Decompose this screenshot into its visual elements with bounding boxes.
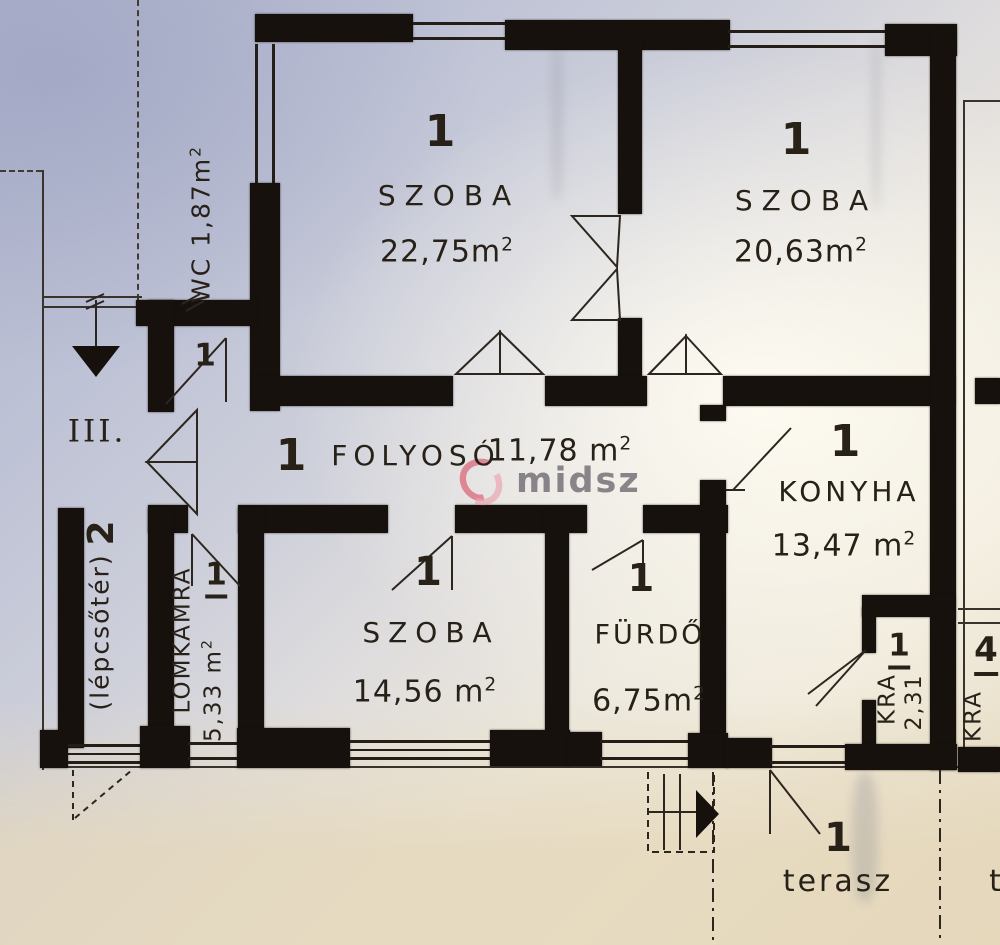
wall bbox=[545, 376, 647, 406]
room-name-konyha: KONYHA bbox=[778, 478, 919, 506]
window bbox=[350, 740, 490, 760]
room-marker-lomkamra: 1 bbox=[205, 560, 227, 591]
wall bbox=[930, 30, 956, 770]
room-area-lomkamra: 5,33 m2 bbox=[201, 638, 226, 742]
room-marker-kra: 1 bbox=[888, 631, 910, 662]
room-marker-szoba1: 1 bbox=[425, 110, 456, 154]
room-label-wc: WC 1,87m2 bbox=[188, 145, 213, 303]
neighbor-terasz-partial: t bbox=[989, 867, 1000, 897]
wall bbox=[568, 732, 602, 766]
neighbor-room-name: KRA bbox=[963, 690, 986, 742]
room-marker-szoba3: 1 bbox=[414, 552, 442, 592]
door-swing bbox=[456, 332, 500, 374]
room-marker-folyoso: 1 bbox=[276, 434, 307, 478]
door-swing bbox=[572, 269, 620, 320]
entry-swing-dashed bbox=[73, 770, 132, 820]
lobby-edge-line bbox=[42, 170, 44, 770]
wall bbox=[723, 376, 955, 406]
room-name-lepcsoter: (lépcsőtér) bbox=[88, 553, 113, 710]
lobby-wall-line bbox=[42, 296, 142, 298]
wall bbox=[958, 747, 1000, 772]
neighbor-wall-line bbox=[958, 622, 1000, 624]
room-area-szoba2: 20,63m2 bbox=[734, 237, 868, 268]
room-area-konyha: 13,47 m2 bbox=[772, 531, 917, 562]
room-marker-wc: 1 bbox=[194, 341, 216, 372]
neighbor-wall-line bbox=[963, 100, 1000, 102]
neighbor-wall-line bbox=[958, 608, 1000, 610]
window bbox=[255, 44, 275, 184]
wall bbox=[975, 378, 1000, 404]
wall bbox=[700, 405, 726, 421]
window bbox=[413, 22, 505, 40]
room-marker-furdo: 1 bbox=[628, 559, 654, 597]
wall bbox=[40, 730, 68, 768]
wall bbox=[618, 318, 642, 378]
room-name-szoba2: SZOBA bbox=[735, 187, 877, 215]
room-name-szoba1: SZOBA bbox=[378, 182, 520, 210]
room-marker-lepcsoter: 2 bbox=[84, 520, 120, 545]
wall bbox=[253, 376, 453, 406]
floor-number-label: III. bbox=[68, 417, 127, 448]
lobby-wall-line bbox=[42, 306, 142, 308]
scan-smudge bbox=[552, 40, 562, 200]
room-area-kra: 2,31 bbox=[904, 674, 926, 731]
door-swing bbox=[572, 216, 620, 267]
window bbox=[188, 742, 238, 760]
room-marker-konyha: 1 bbox=[830, 420, 861, 464]
room-area-szoba3: 14,56 m2 bbox=[353, 677, 498, 708]
room-name-furdo: FÜRDŐ bbox=[594, 622, 705, 649]
wall bbox=[237, 728, 350, 768]
wall bbox=[148, 300, 174, 412]
room-area-folyoso: 11,78 m2 bbox=[488, 436, 633, 467]
window bbox=[68, 744, 140, 764]
neighbor-room-marker: 4 bbox=[974, 633, 998, 667]
window bbox=[770, 745, 845, 764]
step-box bbox=[648, 772, 714, 852]
reference-line bbox=[137, 0, 139, 300]
door-swing bbox=[770, 770, 820, 834]
door-swing bbox=[808, 650, 866, 706]
wall bbox=[545, 510, 569, 736]
room-area-szoba1: 22,75m2 bbox=[380, 237, 514, 268]
room-marker-terasz: 1 bbox=[824, 818, 852, 858]
room-name-kra: KRA bbox=[877, 673, 900, 725]
wall bbox=[238, 508, 264, 750]
room-name-lomkamra: LOMKAMRA bbox=[172, 567, 195, 714]
wall bbox=[845, 744, 957, 770]
step-lines bbox=[648, 774, 696, 850]
wall bbox=[726, 738, 772, 768]
door-swing bbox=[686, 336, 721, 374]
wall bbox=[255, 14, 413, 42]
wall bbox=[688, 733, 728, 768]
room-name-terasz: terasz bbox=[783, 867, 893, 897]
door-swing bbox=[147, 410, 197, 462]
floor-plan: midsz 1 SZOBA 22,75m2 1 SZOBA 20,63m2 WC… bbox=[0, 0, 1000, 945]
room-marker-szoba2: 1 bbox=[781, 118, 812, 162]
wall bbox=[618, 42, 642, 214]
wall bbox=[862, 607, 876, 653]
window bbox=[600, 740, 690, 760]
door-swing bbox=[649, 336, 686, 374]
floor-pointer-arrow bbox=[72, 346, 120, 377]
wall bbox=[140, 726, 190, 768]
wall bbox=[490, 730, 570, 766]
room-area-furdo: 6,75m2 bbox=[592, 686, 706, 717]
step-arrow bbox=[696, 790, 719, 838]
room-name-folyoso: FOLYOSÓ bbox=[331, 442, 500, 470]
neighbor-wall-line bbox=[963, 100, 965, 770]
window bbox=[728, 30, 885, 48]
room-name-szoba3: SZOBA bbox=[362, 619, 499, 647]
door-swing bbox=[500, 332, 543, 374]
reference-line bbox=[0, 170, 42, 172]
